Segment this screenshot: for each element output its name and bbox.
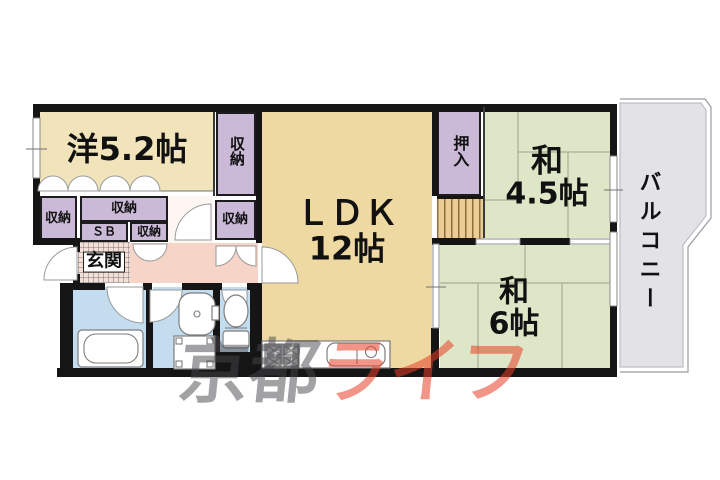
toilet-icon (223, 295, 249, 348)
bathtub-icon (78, 330, 143, 367)
storage-small-label: 収納 (137, 226, 161, 239)
storage-column-label: 収納 (228, 136, 244, 166)
sink-icon (327, 343, 385, 366)
shoe-box-label: ＳＢ (92, 226, 116, 239)
jp45-label-line2: 4.5帖 (505, 178, 588, 210)
storage-left-label: 収納 (45, 212, 71, 226)
balcony-shape (620, 99, 711, 372)
ldk-room-label: ＬＤＫ 12帖 (296, 196, 398, 265)
jp45-label-line1: 和 (505, 144, 588, 178)
jp6-label-line1: 和 (489, 277, 540, 309)
balcony-label: バルコニー (636, 171, 659, 316)
jp6-label-line2: 6帖 (489, 308, 540, 340)
japanese-room-6-label: 和 6帖 (489, 277, 540, 340)
entrance-label: 玄関 (83, 252, 125, 273)
storage-column-lower-label: 収納 (222, 213, 248, 227)
ldk-label-line2: 12帖 (296, 232, 398, 266)
oshiire-label: 押入 (451, 135, 468, 167)
ldk-label-line1: ＬＤＫ (296, 196, 398, 232)
washbasin-icon (179, 293, 219, 335)
floor-plan: 洋5.2帖 ＬＤＫ 12帖 和 4.5帖 和 6帖 バルコニー 収納 収納 収納… (0, 0, 720, 480)
storage-wide-label: 収納 (111, 202, 137, 216)
washing-machine-icon (174, 336, 215, 369)
stove-icon (265, 344, 299, 367)
japanese-room-4-5-label: 和 4.5帖 (505, 144, 588, 209)
western-room-label: 洋5.2帖 (67, 133, 188, 167)
